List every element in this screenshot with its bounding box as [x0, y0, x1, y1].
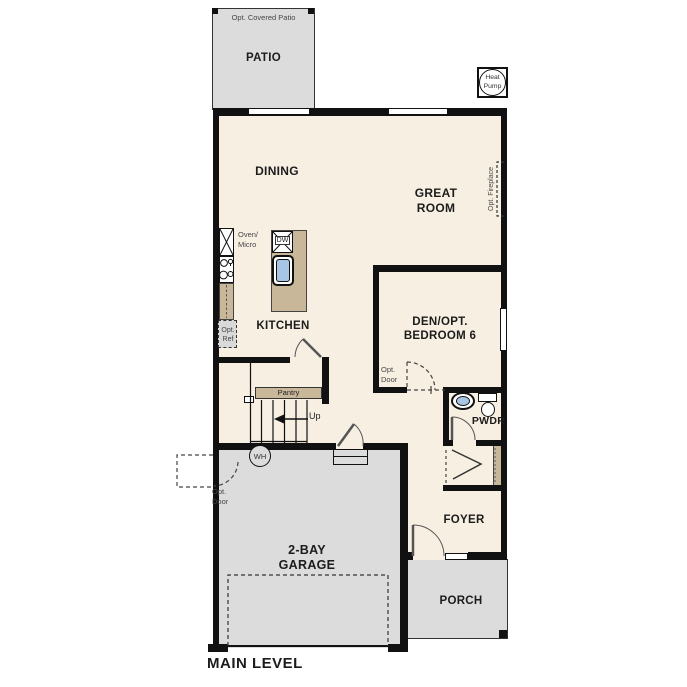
opt-ref-label: Opt. Ref [219, 326, 237, 344]
wall-powder-north [443, 387, 507, 393]
floor-plan: Heat Pump Opt. Ref Oven/ Micro DW Pantry… [0, 0, 687, 687]
wall-closet-north-a [443, 440, 453, 446]
opt-fireplace-label: Opt. Fireplace [487, 159, 497, 219]
wall-left [213, 108, 219, 652]
garage-steps [333, 449, 368, 465]
wall-den-west [373, 265, 379, 393]
closet-shelf [493, 446, 501, 485]
den-opt-door-label: Opt. Door [381, 365, 407, 385]
garage-step-tread [334, 450, 367, 457]
kitchen-label: KITCHEN [248, 319, 318, 333]
wall-pantry-east [322, 357, 329, 404]
powder-label: PWDR [470, 415, 507, 428]
plan-title: MAIN LEVEL [207, 655, 327, 673]
front-door-opening [413, 552, 445, 560]
patio-label: PATIO [212, 51, 315, 65]
wall-garage-north [213, 443, 400, 450]
dishwasher-tag: DW [275, 236, 291, 245]
water-heater-label: WH [254, 452, 267, 461]
wall-front-right [468, 552, 507, 560]
foyer-label: FOYER [439, 513, 489, 527]
wall-den-north [373, 265, 507, 272]
patio-option-label: Opt. Covered Patio [212, 13, 315, 23]
wall-closet-south [443, 485, 507, 491]
window-den [500, 308, 507, 351]
garage-opt-door-label: Opt. Door [212, 487, 238, 507]
front-sidelight-window [445, 553, 468, 560]
kitchen-counter [219, 283, 234, 320]
stair-newel [244, 396, 254, 403]
up-label: Up [309, 411, 321, 423]
wall-closet-north-b [476, 440, 507, 446]
wall-den-south-left [373, 387, 407, 393]
wall-garage-south-post-right [388, 644, 408, 652]
pantry-label: Pantry [255, 388, 322, 398]
island-sink [276, 259, 290, 282]
wall-powder-west [443, 387, 449, 446]
wall-garage-south-line [218, 645, 390, 647]
cooktop-unit [219, 256, 234, 283]
wall-garage-east [400, 443, 408, 652]
oven-micro-unit [219, 228, 234, 256]
oven-micro-label: Oven/ Micro [238, 230, 268, 250]
heat-pump-label: Heat Pump [479, 74, 506, 92]
wall-front-left [400, 552, 413, 560]
water-heater: WH [249, 445, 271, 467]
great-room-label: GREAT ROOM [401, 186, 471, 215]
window-dining-patio [248, 108, 310, 115]
garage-label: 2-BAY GARAGE [271, 543, 343, 574]
powder-sink [456, 396, 470, 406]
den-label: DEN/OPT. BEDROOM 6 [395, 315, 485, 343]
dishwasher-label: DW [272, 236, 293, 245]
dining-label: DINING [227, 164, 327, 179]
toilet-tank [478, 393, 497, 402]
wall-kitchen-south [213, 357, 290, 363]
porch-label: PORCH [433, 594, 489, 608]
wall-garage-south-post-left [208, 644, 228, 652]
window-great-room [388, 108, 448, 115]
porch-post [499, 630, 507, 638]
